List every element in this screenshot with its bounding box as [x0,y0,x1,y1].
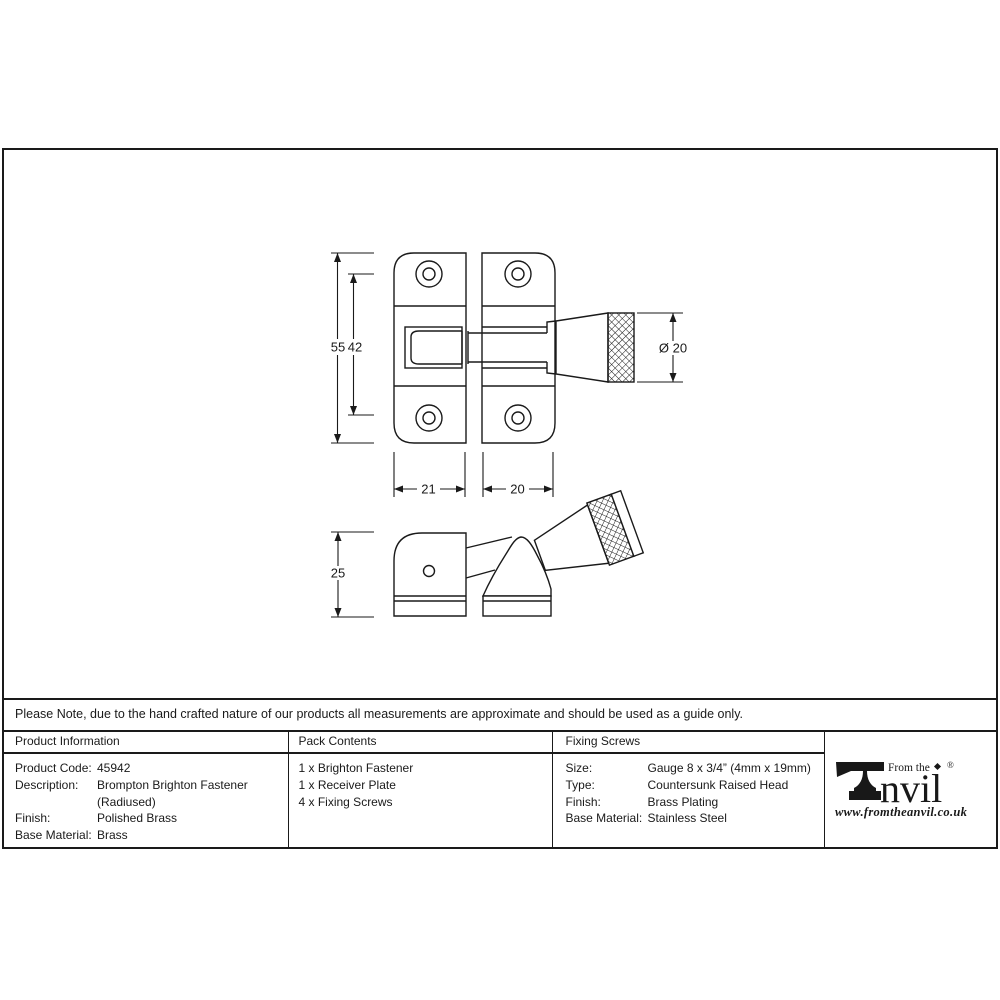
product-information-body: Product Code: 45942 Description: Brompto… [4,754,288,844]
table-row: Finish: Polished Brass [15,810,288,827]
table-row: Finish: Brass Plating [566,794,824,811]
row-value: Countersunk Raised Head [648,777,824,794]
note-text: Please Note, due to the hand crafted nat… [15,707,743,721]
row-value: Polished Brass [97,810,288,827]
row-value: 45942 [97,760,288,777]
row-label: Product Code: [15,760,97,777]
table-row: Product Code: 45942 [15,760,288,777]
row-value: (Radiused) [97,794,288,811]
row-label [15,794,97,811]
table-row: Description: Brompton Brighton Fastener [15,777,288,794]
anvil-icon [836,762,884,800]
side-fastener-block [394,533,466,616]
row-label: Finish: [15,810,97,827]
dim-plate-width-label: 21 [421,482,435,497]
row-value: Gauge 8 x 3/4” (4mm x 19mm) [648,760,824,777]
logo-website-text: www.fromtheanvil.co.uk [835,805,968,819]
knob-cone [556,313,608,382]
receiver-plate-base [483,596,551,616]
list-item: 4 x Fixing Screws [299,794,552,811]
row-value: Brass Plating [648,794,824,811]
note-row: Please Note, due to the hand crafted nat… [4,698,996,730]
pack-contents-body: 1 x Brighton Fastener 1 x Receiver Plate… [289,754,552,810]
row-value: Brompton Brighton Fastener [97,777,288,794]
pack-contents-column: Pack Contents 1 x Brighton Fastener 1 x … [289,732,553,847]
dim-receiver-width-label: 20 [510,482,524,497]
row-label: Size: [566,760,648,777]
list-item: 1 x Receiver Plate [299,777,552,794]
table-row: Base Material: Brass [15,827,288,844]
pack-contents-header: Pack Contents [289,732,552,754]
knurled-knob [608,313,634,382]
row-label: Type: [566,777,648,794]
row-label: Finish: [566,794,648,811]
row-label: Base Material: [566,810,648,827]
table-row: Base Material: Stainless Steel [566,810,824,827]
table-row: Type: Countersunk Raised Head [566,777,824,794]
side-view-drawing [394,491,643,616]
plate-right-half [482,253,555,443]
from-the-anvil-logo-svg: From the nvil ® www.fromtheanvil.co.uk [834,756,986,820]
technical-drawing-area: 55 42 Ø 20 21 20 25 [4,150,996,698]
dim-overall-height-label: 55 [331,340,345,355]
fixing-screws-header: Fixing Screws [553,732,824,754]
table-row: Size: Gauge 8 x 3/4” (4mm x 19mm) [566,760,824,777]
spec-sheet-frame: 55 42 Ø 20 21 20 25 Please Note, due to … [2,148,998,849]
dim-knob-diameter-label: Ø 20 [659,341,687,356]
brand-logo-cell: From the nvil ® www.fromtheanvil.co.uk [825,732,997,847]
row-value: Stainless Steel [648,810,824,827]
row-label: Base Material: [15,827,97,844]
row-value: Brass [97,827,288,844]
front-view-drawing [394,253,634,443]
logo-registered-mark: ® [947,760,954,770]
technical-drawing-svg: 55 42 Ø 20 21 20 25 [4,150,996,698]
fixing-screws-column: Fixing Screws Size: Gauge 8 x 3/4” (4mm … [553,732,825,847]
dim-depth-label: 25 [331,566,345,581]
fixing-screws-body: Size: Gauge 8 x 3/4” (4mm x 19mm) Type: … [553,754,824,827]
product-information-column: Product Information Product Code: 45942 … [4,732,289,847]
from-the-anvil-logo: From the nvil ® www.fromtheanvil.co.uk [834,756,986,820]
table-row: (Radiused) [15,794,288,811]
spec-table: Product Information Product Code: 45942 … [4,730,996,847]
list-item: 1 x Brighton Fastener [299,760,552,777]
product-information-header: Product Information [4,732,288,754]
row-label: Description: [15,777,97,794]
dim-screw-height-label: 42 [348,340,362,355]
